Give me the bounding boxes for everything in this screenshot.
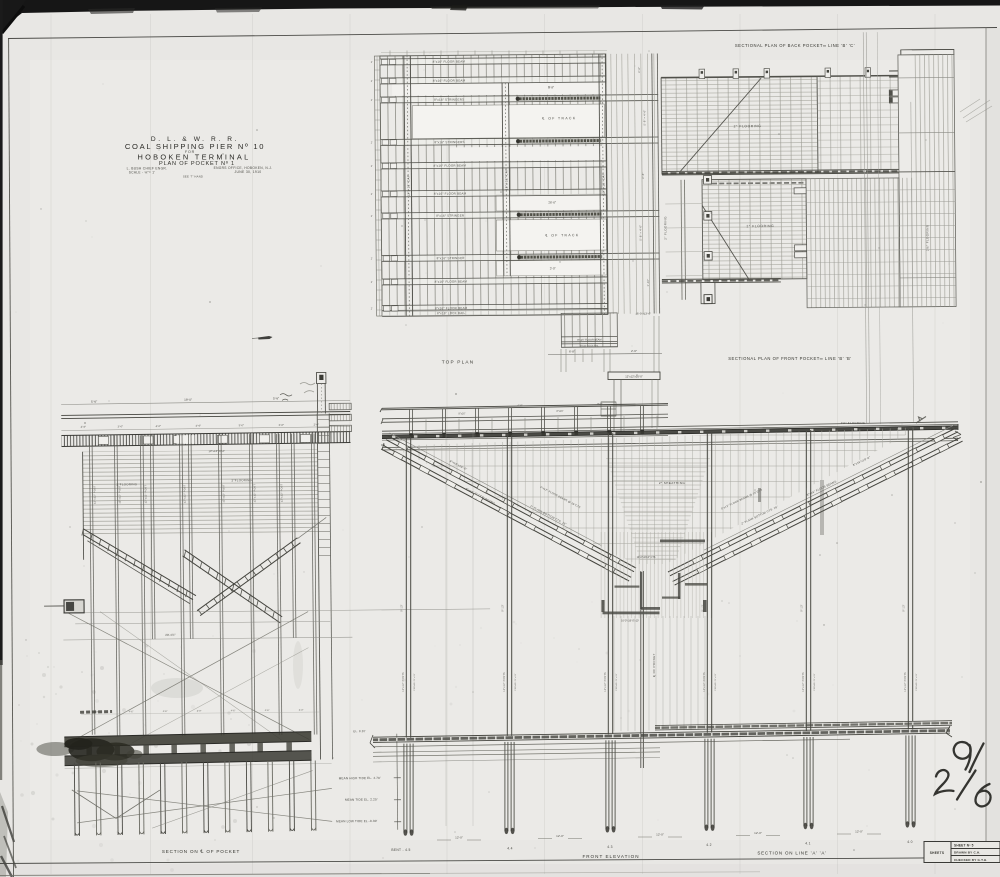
svg-text:MEAN HIGH TIDE EL. 4.70′: MEAN HIGH TIDE EL. 4.70′: [339, 776, 381, 780]
svg-text:SHEET Nº 5: SHEET Nº 5: [954, 844, 974, 848]
svg-text:SECTION ON ℄ OF POCKET: SECTION ON ℄ OF POCKET: [162, 849, 240, 854]
svg-text:2′-6″: 2′-6″: [641, 173, 645, 179]
svg-text:4.3: 4.3: [607, 845, 612, 849]
svg-text:9′-10″: 9′-10″: [903, 604, 906, 611]
svg-text:8″x16″ FLOOR BEAM: 8″x16″ FLOOR BEAM: [433, 79, 466, 83]
svg-text:2′-0″: 2′-0″: [314, 423, 319, 427]
svg-text:12′-0″: 12′-0″: [455, 836, 463, 840]
svg-text:8″x16″ STRINGERS: 8″x16″ STRINGERS: [435, 140, 465, 144]
svg-text:8″x16″: 8″x16″: [557, 410, 564, 413]
svg-text:8″x16″ LOCK RAIL: 8″x16″ LOCK RAIL: [437, 311, 466, 315]
svg-text:16′-0″x13′-6″: 16′-0″x13′-6″: [635, 312, 651, 316]
svg-text:3′-0″: 3′-0″: [239, 423, 244, 427]
svg-text:4.0: 4.0: [907, 840, 912, 844]
svg-text:COAL SHIPPING PIER Nº 10: COAL SHIPPING PIER Nº 10: [125, 142, 265, 151]
svg-text:12″x12″ POSTS: 12″x12″ POSTS: [604, 672, 607, 692]
svg-text:8″x16″ FLOOR BEAM: 8″x16″ FLOOR BEAM: [433, 60, 466, 64]
svg-text:20′-4½″: 20′-4½″: [165, 633, 175, 637]
svg-text:CEDAR 21′x31′: CEDAR 21′x31′: [714, 673, 717, 691]
svg-text:6′-8″: 6′-8″: [569, 350, 575, 354]
svg-text:BENT - 4.5: BENT - 4.5: [391, 848, 410, 852]
svg-text:SEE ’T’ HAND: SEE ’T’ HAND: [183, 175, 203, 179]
svg-text:4.2: 4.2: [706, 843, 711, 847]
svg-text:4′-6″: 4′-6″: [517, 404, 522, 408]
svg-text:2″ FLOORING: 2″ FLOORING: [734, 124, 762, 128]
svg-text:4′-0″: 4′-0″: [156, 424, 161, 428]
svg-text:3′-0″: 3′-0″: [299, 709, 304, 712]
svg-text:12′-0″: 12′-0″: [855, 830, 863, 834]
svg-text:SECTIONAL PLAN OF FRONT POCKET: SECTIONAL PLAN OF FRONT POCKET═ LINE ’B’…: [728, 356, 851, 361]
svg-text:5′-8″ = 4′-6″: 5′-8″ = 4′-6″: [638, 225, 642, 241]
svg-text:4′-6″: 4′-6″: [163, 710, 168, 713]
svg-text:12″x12″ POST: 12″x12″ POST: [253, 484, 256, 503]
svg-text:5′-8″ = 4′-6″: 5′-8″ = 4′-6″: [642, 110, 646, 126]
svg-text:3′-6″: 3′-6″: [196, 424, 201, 428]
svg-text:12″x12″ POST: 12″x12″ POST: [183, 484, 186, 503]
svg-text:12′-0″: 12′-0″: [754, 831, 762, 835]
svg-text:8″x16″ FLOOR BEAM: 8″x16″ FLOOR BEAM: [577, 339, 601, 342]
svg-text:12″x 12″ CAP: 12″x 12″ CAP: [601, 173, 605, 195]
svg-text:℄ OF TRACK: ℄ OF TRACK: [541, 116, 576, 120]
svg-text:5′-6″: 5′-6″: [273, 396, 280, 400]
svg-text:SECTIONAL PLAN OF BACK POCKET═: SECTIONAL PLAN OF BACK POCKET═ LINE ’B’ …: [735, 43, 855, 48]
svg-text:4.1: 4.1: [805, 842, 810, 846]
svg-text:SCALE - ⅛″= 1′: SCALE - ⅛″= 1′: [129, 170, 155, 174]
svg-text:3′-0″: 3′-0″: [197, 710, 202, 713]
svg-text:CEDAR 21′x31′: CEDAR 21′x31′: [915, 673, 918, 691]
svg-text:12″x12″ POST: 12″x12″ POST: [144, 485, 147, 504]
svg-text:2″FLOORING: 2″FLOORING: [117, 482, 138, 486]
svg-text:12″x12″ POST: 12″x12″ POST: [93, 485, 96, 504]
svg-text:12′-0″: 12′-0″: [556, 834, 564, 838]
svg-text:12″x12″ POSTS: 12″x12″ POSTS: [802, 672, 805, 692]
svg-text:4′-6″: 4′-6″: [231, 709, 236, 712]
svg-text:FRONT ELEVATION: FRONT ELEVATION: [582, 854, 639, 859]
svg-text:JUNE 30, 1910: JUNE 30, 1910: [235, 170, 262, 174]
svg-text:9′-10″: 9′-10″: [502, 604, 505, 611]
svg-text:8′-0″: 8′-0″: [597, 402, 602, 406]
svg-text:MEAN TIDE EL. 2.20′: MEAN TIDE EL. 2.20′: [345, 797, 378, 801]
svg-text:12″x12″ POST: 12″x12″ POST: [222, 484, 225, 503]
svg-text:SHEETS: SHEETS: [930, 851, 945, 855]
svg-text:5′-6″: 5′-6″: [91, 400, 98, 404]
svg-text:9′-10″: 9′-10″: [603, 604, 606, 611]
svg-text:12″x 12″ CAP: 12″x 12″ CAP: [406, 175, 410, 197]
svg-text:19′-0″: 19′-0″: [184, 398, 193, 402]
svg-text:8″x16″ STRINGERS: 8″x16″ STRINGERS: [434, 98, 464, 102]
svg-text:8″x16″ STRINGER: 8″x16″ STRINGER: [437, 256, 466, 260]
svg-text:TOP PLAN: TOP PLAN: [442, 360, 475, 365]
svg-text:2″ FLOORING: 2″ FLOORING: [663, 216, 667, 240]
svg-text:℄ OF POCKET: ℄ OF POCKET: [652, 653, 656, 677]
svg-text:10′-0″x16′-0″ CTS: 10′-0″x16′-0″ CTS: [637, 556, 656, 559]
svg-text:CEDAR 21′x31′: CEDAR 21′x31′: [514, 673, 517, 691]
svg-text:EL. 8.20′: EL. 8.20′: [353, 729, 366, 733]
svg-text:2″ FLOORING: 2″ FLOORING: [747, 224, 775, 228]
svg-text:12″x12″ POSTS: 12″x12″ POSTS: [703, 672, 706, 692]
svg-text:CEDAR 21′x31′: CEDAR 21′x31′: [413, 673, 416, 691]
svg-text:2′-6″: 2′-6″: [631, 349, 637, 353]
svg-text:12″x12″ POST: 12″x12″ POST: [280, 483, 283, 502]
svg-text:8″x16″: 8″x16″: [459, 413, 466, 416]
svg-text:4′-6″: 4′-6″: [81, 425, 86, 429]
svg-text:12″x12″ POSTS: 12″x12″ POSTS: [904, 672, 907, 692]
svg-text:8″x16″ STRINGER: 8″x16″ STRINGER: [436, 214, 465, 218]
svg-text:℄ OF TRACK: ℄ OF TRACK: [544, 233, 579, 237]
svg-text:2′-0″: 2′-0″: [637, 67, 641, 73]
svg-text:4.4: 4.4: [507, 846, 512, 850]
svg-text:8″x16″ FLOOR BEAM: 8″x16″ FLOOR BEAM: [434, 192, 467, 196]
svg-text:9′-10″: 9′-10″: [702, 604, 705, 611]
svg-text:4′-6″: 4′-6″: [265, 709, 270, 712]
svg-text:26′-6″: 26′-6″: [548, 200, 556, 204]
svg-text:CHECKED BY G.T.H.: CHECKED BY G.T.H.: [954, 858, 987, 862]
svg-text:12″x12″ POSTS: 12″x12″ POSTS: [402, 672, 405, 692]
svg-text:12″x 12″ CAP: 12″x 12″ CAP: [504, 168, 508, 190]
svg-text:4′-6″: 4′-6″: [129, 710, 134, 713]
svg-text:9′-10″: 9′-10″: [801, 604, 804, 611]
svg-text:16′-0″x16′-0″x10′: 16′-0″x16′-0″x10′: [621, 620, 639, 623]
svg-text:3′-0″: 3′-0″: [550, 266, 556, 270]
svg-text:2″ SHEATHING: 2″ SHEATHING: [659, 481, 685, 485]
svg-text:9′-10″: 9′-10″: [401, 604, 404, 611]
svg-text:12″x12″x16′-0″: 12″x12″x16′-0″: [625, 374, 642, 378]
svg-text:12′-0″: 12′-0″: [656, 833, 664, 837]
svg-text:3′-0″: 3′-0″: [118, 424, 123, 428]
svg-text:12″x12″ POSTS: 12″x12″ POSTS: [503, 672, 506, 692]
svg-text:2⅝″ FLOORING: 2⅝″ FLOORING: [841, 421, 866, 425]
svg-text:2″FLOORING: 2″FLOORING: [231, 478, 252, 482]
svg-text:CEDAR 21′x31′: CEDAR 21′x31′: [813, 673, 816, 691]
svg-text:1′-10″: 1′-10″: [646, 279, 650, 287]
svg-text:MEAN LOW TIDE EL.-0.30′: MEAN LOW TIDE EL.-0.30′: [336, 819, 378, 823]
svg-text:8″x16″ LOCK RAIL: 8″x16″ LOCK RAIL: [580, 344, 599, 347]
svg-text:8″x16″ FLOOR BEAM: 8″x16″ FLOOR BEAM: [434, 164, 467, 168]
svg-text:8″x16″ FLOOR BEAM: 8″x16″ FLOOR BEAM: [435, 280, 468, 284]
svg-text:DRAWN BY C.H.: DRAWN BY C.H.: [954, 851, 980, 855]
svg-text:CEDAR 21′x31′: CEDAR 21′x31′: [615, 673, 618, 691]
svg-text:SECTION ON LINE ’A’ ’A’: SECTION ON LINE ’A’ ’A’: [757, 851, 826, 856]
svg-text:3′-6″: 3′-6″: [279, 423, 284, 427]
